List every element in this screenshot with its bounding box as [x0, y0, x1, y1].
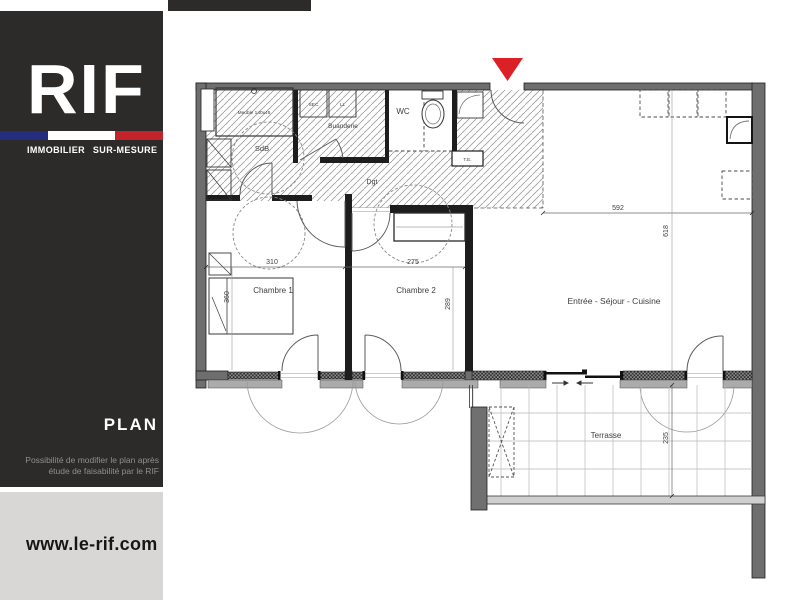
label-chambre1: Chambre 1 — [253, 286, 293, 295]
electrical-panel: T.E. — [452, 151, 483, 166]
terrace-pillar — [471, 407, 487, 510]
floor-plan: T.E. Meuble 140x45 SEC LL — [0, 0, 800, 600]
windows-and-facade — [208, 370, 752, 389]
wc-room — [389, 90, 452, 151]
vanity-label: Meuble 140x45 — [238, 110, 271, 116]
dim-chambre2-width: 275 — [407, 259, 419, 266]
label-wc: WC — [396, 107, 410, 116]
dim-chambre1-height: 360 — [224, 291, 231, 303]
dryer-label: SEC — [309, 102, 319, 108]
chambre2-window — [401, 372, 465, 379]
label-terrasse: Terrasse — [591, 431, 622, 440]
dim-terrasse-depth: 235 — [663, 432, 670, 444]
chambre2-wardrobe — [394, 213, 465, 241]
dim-chambre1-width: 310 — [266, 259, 278, 266]
planter-box — [489, 407, 514, 477]
chambre1-window — [228, 372, 280, 379]
dim-sejour-height: 618 — [663, 225, 670, 237]
label-sdb: SdB — [255, 144, 269, 153]
label-dgt: Dgt — [367, 179, 378, 186]
kitchen-cabinets — [640, 90, 752, 199]
label-chambre2: Chambre 2 — [396, 286, 436, 295]
terrace — [470, 385, 766, 510]
dim-chambre2-height: 289 — [445, 298, 452, 310]
entrance-marker-icon — [492, 58, 523, 81]
label-buanderie: Buanderie — [328, 123, 358, 130]
terrace-edge — [473, 496, 765, 504]
dim-sejour-width: 592 — [612, 205, 624, 212]
wall-niche-sink — [727, 117, 752, 143]
toilet-tank — [422, 91, 443, 99]
sliding-bay-window — [546, 370, 620, 386]
te-label: T.E. — [463, 157, 471, 163]
washer-label: LL — [340, 102, 346, 108]
radiator — [201, 89, 214, 131]
label-sejour: Entrée - Séjour - Cuisine — [567, 296, 660, 306]
entry-niche — [457, 92, 483, 118]
